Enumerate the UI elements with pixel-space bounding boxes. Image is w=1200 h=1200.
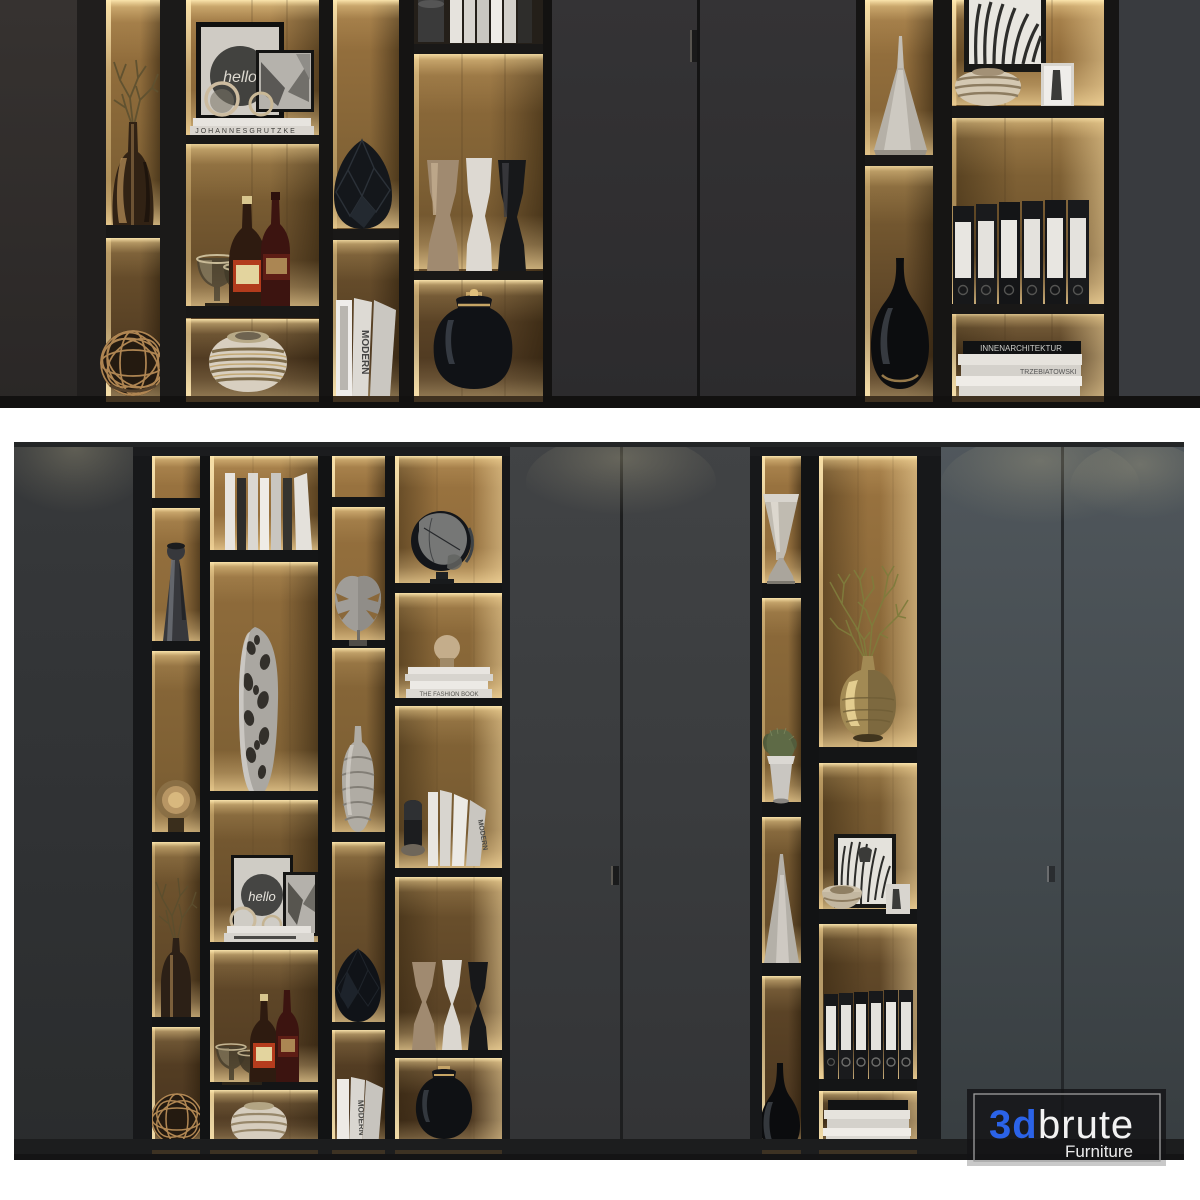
svg-text:JOHANNESGRUTZKE: JOHANNESGRUTZKE [195, 128, 297, 135]
svg-text:THE FASHION BOOK: THE FASHION BOOK [419, 692, 478, 698]
svg-text:brute: brute [1038, 1103, 1134, 1147]
svg-text:MODERN: MODERN [359, 330, 370, 374]
svg-text:3d: 3d [989, 1103, 1038, 1147]
svg-text:Furniture: Furniture [1065, 1142, 1133, 1161]
svg-text:TRZEBIATOWSKI: TRZEBIATOWSKI [1020, 369, 1077, 376]
svg-text:INNENARCHITEKTUR: INNENARCHITEKTUR [980, 344, 1062, 353]
svg-text:hello: hello [248, 889, 275, 904]
